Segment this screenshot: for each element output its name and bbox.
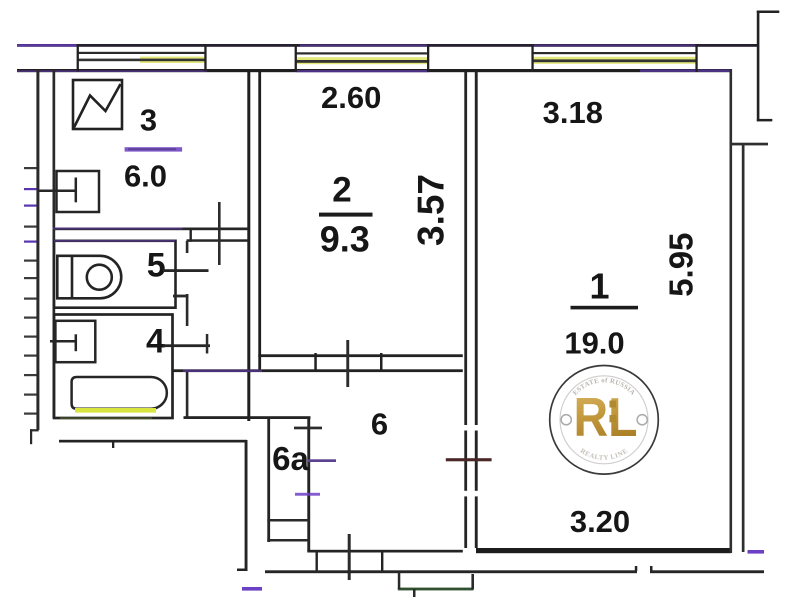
svg-text:1: 1	[589, 266, 609, 307]
svg-text:2: 2	[332, 171, 351, 210]
svg-text:9.3: 9.3	[320, 219, 370, 260]
svg-text:5.95: 5.95	[663, 233, 700, 297]
svg-text:RL: RL	[574, 386, 638, 448]
svg-text:6a: 6a	[272, 440, 309, 477]
svg-text:3.18: 3.18	[543, 95, 603, 130]
svg-text:6.0: 6.0	[124, 159, 167, 194]
svg-text:3: 3	[140, 103, 157, 138]
svg-text:3.57: 3.57	[410, 174, 451, 246]
svg-text:6: 6	[371, 407, 388, 442]
svg-text:19.0: 19.0	[564, 326, 624, 361]
svg-text:5: 5	[147, 247, 166, 285]
svg-text:3.20: 3.20	[570, 504, 630, 539]
svg-text:4: 4	[146, 323, 165, 361]
svg-text:2.60: 2.60	[321, 80, 381, 115]
